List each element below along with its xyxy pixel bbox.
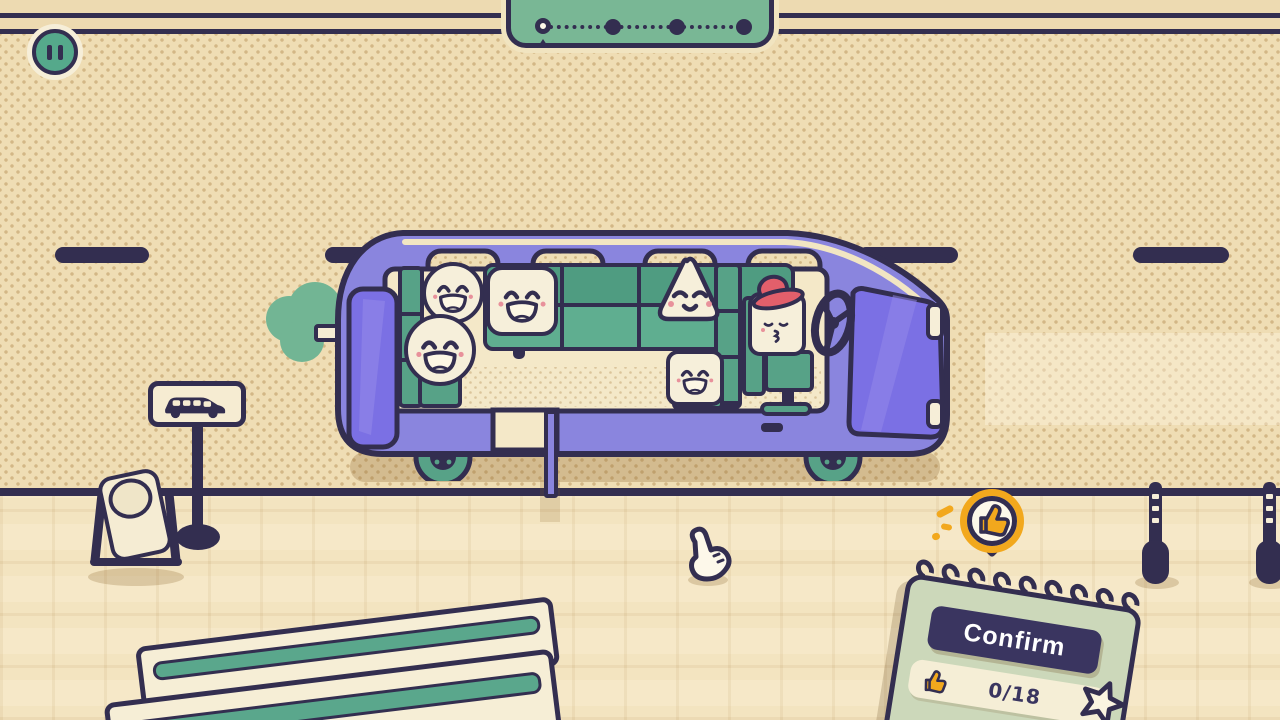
triangle-marker — [537, 39, 549, 48]
route-stop — [669, 19, 685, 35]
bollard — [1149, 482, 1162, 552]
trash-can-body — [96, 466, 175, 563]
trash-can — [88, 468, 184, 588]
lane-dash — [55, 247, 149, 263]
route-stop — [605, 19, 621, 35]
limo-icon — [158, 389, 236, 419]
driver-hat — [748, 272, 810, 314]
bus-stop-sign — [148, 381, 246, 427]
bollard — [1263, 482, 1276, 552]
hint-bubble — [960, 489, 1030, 565]
passenger-triangle-happy[interactable] — [654, 254, 724, 326]
route-stop-current — [535, 18, 551, 34]
hand-cursor-icon — [680, 526, 736, 588]
route-dotted-line — [549, 25, 749, 29]
thumbs-up-icon — [921, 667, 948, 694]
sign-pole — [192, 425, 203, 533]
steering-wheel — [806, 284, 860, 362]
passenger-square-laughing[interactable] — [666, 350, 724, 406]
game-stage: Confirm 0/18 — [0, 0, 1280, 720]
passenger-round-laughing[interactable] — [404, 314, 476, 386]
bus-stop-road-marking — [985, 333, 1280, 425]
thumbs-up-icon — [974, 501, 1012, 539]
pause-icon — [32, 29, 78, 75]
door-pole — [544, 410, 558, 498]
passenger-square-laughing[interactable] — [486, 266, 558, 336]
route-progress-panel — [506, 0, 774, 48]
pause-button[interactable] — [27, 24, 83, 80]
route-stop — [736, 19, 752, 35]
lane-dash — [1133, 247, 1229, 263]
driver-seat-base — [760, 402, 812, 416]
